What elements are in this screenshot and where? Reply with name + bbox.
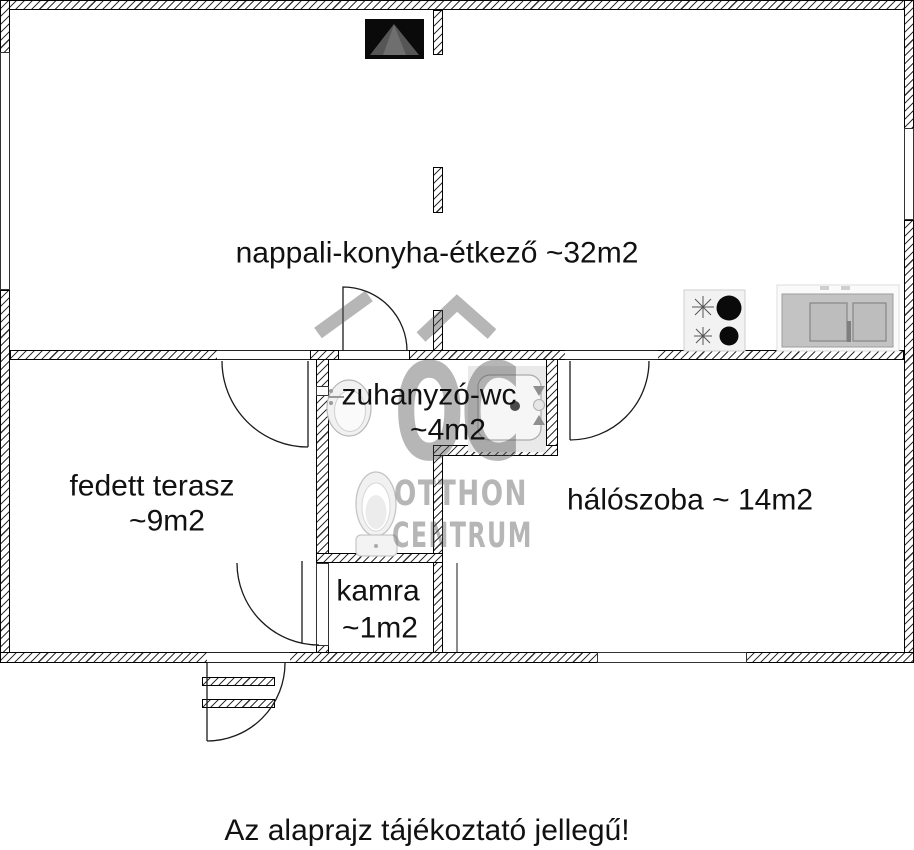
door-shower xyxy=(343,287,407,351)
door-terrace xyxy=(222,361,308,447)
kitchen-sink-icon xyxy=(777,285,899,351)
floor-plan: OC OTTHON CENTRUM nappali-konyha-étkező … xyxy=(0,0,914,850)
label-living-room: nappali-konyha-étkező ~32m2 xyxy=(236,236,639,271)
toilet-icon xyxy=(356,472,397,556)
cooktop-icon xyxy=(684,290,745,351)
door-entrance xyxy=(207,663,285,741)
label-bedroom: hálószoba ~ 14m2 xyxy=(567,483,813,518)
label-shower-wc-area: ~4m2 xyxy=(410,413,486,448)
door-pantry xyxy=(237,561,319,645)
label-pantry: kamra xyxy=(336,574,419,609)
label-terrace-area: ~9m2 xyxy=(129,504,205,539)
caption-disclaimer: Az alaprajz tájékoztató jellegű! xyxy=(224,814,629,848)
door-bedroom xyxy=(570,361,649,440)
label-shower-wc: zuhanyzó-wc xyxy=(341,378,516,413)
fireplace-icon xyxy=(365,19,424,59)
label-terrace: fedett terasz xyxy=(69,469,234,504)
label-pantry-area: ~1m2 xyxy=(342,611,418,646)
